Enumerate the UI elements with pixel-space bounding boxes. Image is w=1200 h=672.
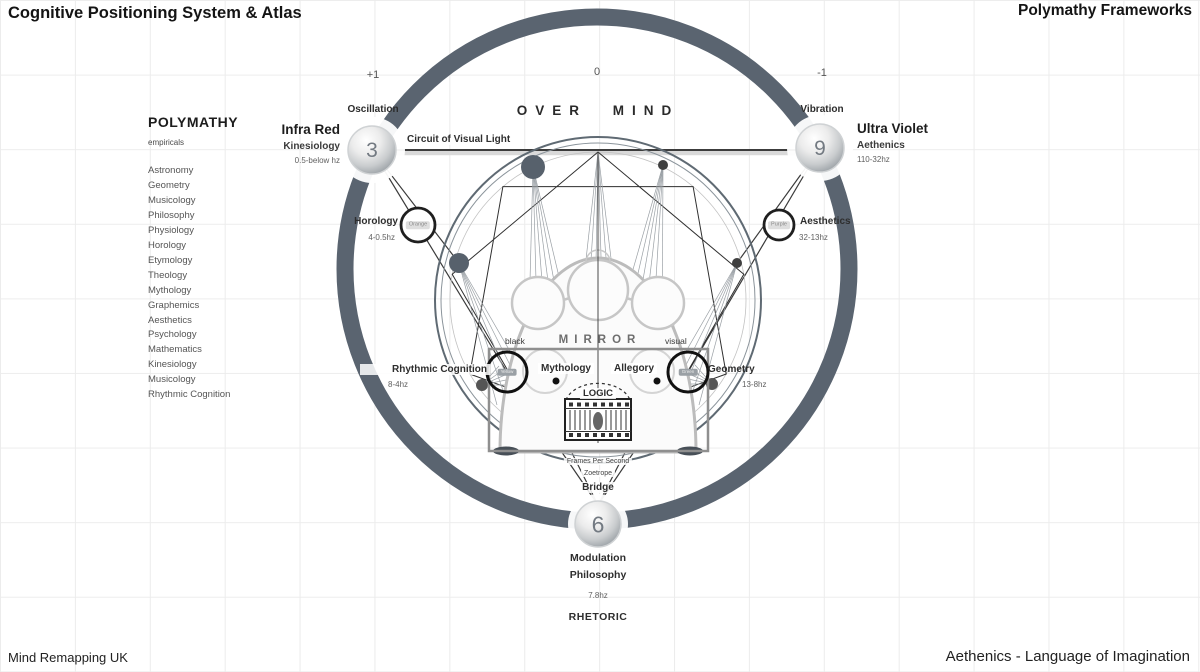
geometry-label: Geometry — [708, 364, 755, 375]
oscillation-label: Oscillation — [347, 104, 398, 115]
list-item: Physiology — [148, 224, 230, 239]
axis-zero: 0 — [594, 66, 600, 78]
visual-label: visual — [665, 336, 687, 346]
aethenics-label: Aethenics — [857, 140, 905, 151]
bridge-label: Bridge — [579, 482, 617, 493]
circuit-line — [388, 150, 802, 153]
mirror-label: MIRROR — [559, 334, 642, 346]
fps-label: Frames Per Second — [564, 458, 632, 465]
node-9-number: 9 — [814, 137, 826, 161]
kinesiology-label: Kinesiology — [240, 141, 340, 152]
aesthetics-freq: 32-13hz — [799, 233, 828, 242]
rhythmic-cognition-label: Rhythmic Cognition — [360, 364, 490, 375]
aesthetics-label: Aesthetics — [800, 216, 851, 227]
infra-red-freq: 0.5-below hz — [240, 156, 340, 165]
list-item: Aesthetics — [148, 314, 230, 329]
allegory-label: Allegory — [611, 363, 657, 374]
list-item: Horology — [148, 239, 230, 254]
node-6-number: 6 — [592, 512, 605, 539]
page-title: Cognitive Positioning System & Atlas — [8, 4, 302, 23]
infra-red-label: Infra Red — [240, 122, 340, 137]
sidebar-subheading: empiricals — [148, 138, 184, 147]
ultra-violet-label: Ultra Violet — [857, 121, 928, 136]
list-item: Musicology — [148, 194, 230, 209]
geometry-freq: 13-8hz — [742, 380, 766, 389]
axis-minus-one: -1 — [817, 67, 827, 79]
vibration-label: Vibration — [800, 104, 843, 115]
orange-node-label: Orange — [406, 221, 430, 229]
logic-label: LOGIC — [580, 388, 616, 399]
horology-label: Horology — [310, 216, 398, 227]
yellow-node-label: Yellow — [498, 369, 517, 376]
purple-node-label: Purple — [768, 221, 790, 229]
sidebar-heading: POLYMATHY — [148, 114, 238, 130]
green-node-label: Green — [679, 369, 698, 376]
page: { "header": { "title_left": "Cognitive P… — [0, 0, 1200, 672]
mythology-label: Mythology — [538, 363, 594, 374]
over-mind-label: OVER MIND — [517, 103, 680, 118]
modulation-label: Modulation — [570, 552, 626, 564]
footer-brand: Mind Remapping UK — [8, 650, 128, 665]
list-item: Philosophy — [148, 209, 230, 224]
philosophy-label: Philosophy — [570, 569, 627, 581]
polymathy-list: Astronomy Geometry Musicology Philosophy… — [148, 164, 230, 403]
horology-freq: 4-0.5hz — [310, 233, 395, 242]
list-item: Graphemics — [148, 299, 230, 314]
list-item: Mathematics — [148, 343, 230, 358]
list-item: Etymology — [148, 254, 230, 269]
node-6-freq: 7.8hz — [588, 591, 608, 600]
list-item: Kinesiology — [148, 358, 230, 373]
circuit-label: Circuit of Visual Light — [404, 134, 513, 145]
footer-tagline: Aethenics - Language of Imagination — [946, 648, 1190, 665]
list-item: Mythology — [148, 284, 230, 299]
list-item: Psychology — [148, 328, 230, 343]
ultra-violet-freq: 110-32hz — [857, 155, 890, 164]
zoetrope-label: Zoetrope — [581, 470, 615, 477]
rhythmic-freq: 8-4hz — [388, 380, 408, 389]
list-item: Musicology — [148, 373, 230, 388]
list-item: Theology — [148, 269, 230, 284]
axis-plus-one: +1 — [367, 69, 380, 81]
rhetoric-label: RHETORIC — [569, 611, 628, 623]
node-3-number: 3 — [366, 139, 378, 163]
black-label: black — [505, 336, 525, 346]
list-item: Astronomy — [148, 164, 230, 179]
list-item: Rhythmic Cognition — [148, 388, 230, 403]
list-item: Geometry — [148, 179, 230, 194]
framework-title: Polymathy Frameworks — [1018, 2, 1192, 20]
